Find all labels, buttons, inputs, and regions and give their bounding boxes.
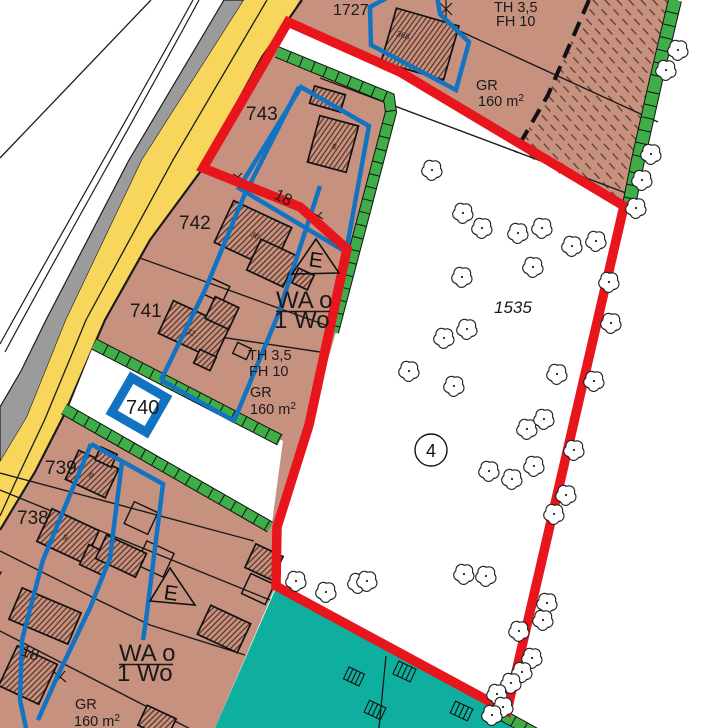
svg-text:GR: GR	[250, 385, 272, 401]
svg-text:740: 740	[126, 397, 159, 419]
svg-text:GR: GR	[75, 697, 97, 713]
svg-text:FH 10: FH 10	[249, 364, 289, 380]
svg-text:160 m2: 160 m2	[478, 93, 524, 110]
svg-text:1 Wo: 1 Wo	[117, 660, 173, 687]
svg-text:738: 738	[17, 508, 49, 529]
svg-text:739: 739	[45, 458, 77, 479]
svg-text:160 m2: 160 m2	[250, 401, 296, 418]
svg-text:741: 741	[130, 301, 162, 322]
svg-text:FH 10: FH 10	[496, 14, 536, 30]
svg-text:4: 4	[426, 441, 436, 461]
svg-text:GR: GR	[476, 78, 498, 94]
svg-text:1535: 1535	[494, 298, 532, 317]
svg-text:7: 7	[0, 569, 3, 590]
svg-text:743: 743	[246, 104, 278, 125]
svg-text:742: 742	[179, 213, 211, 234]
svg-text:1 Wo: 1 Wo	[274, 307, 330, 334]
svg-text:TH 3,5: TH 3,5	[248, 348, 292, 364]
svg-text:160 m2: 160 m2	[74, 713, 120, 728]
svg-text:1727: 1727	[333, 2, 369, 19]
